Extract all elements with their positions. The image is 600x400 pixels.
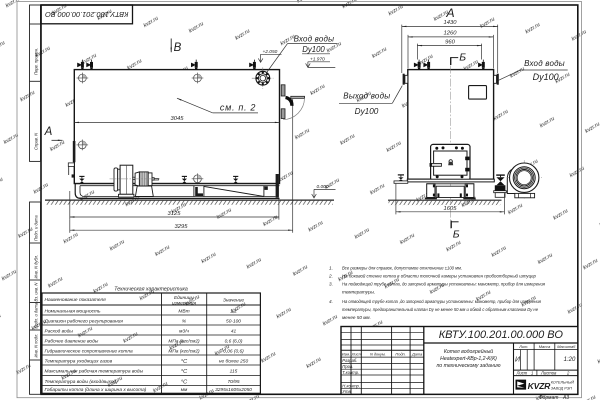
svg-text:Дата: Дата	[411, 352, 423, 357]
svg-text:Dy100: Dy100	[533, 72, 559, 82]
svg-text:Листов: Листов	[540, 371, 557, 376]
svg-text:4.: 4.	[329, 299, 333, 304]
svg-text:Лит.: Лит.	[518, 344, 528, 349]
svg-text:Номинальная мощность: Номинальная мощность	[45, 308, 102, 314]
svg-text:2.: 2.	[328, 273, 333, 278]
svg-text:3045: 3045	[171, 116, 185, 122]
svg-text:Рабочее давление воды: Рабочее давление воды	[45, 338, 99, 344]
svg-text:На боковой стенке котла в обла: На боковой стенке котла в области топочн…	[342, 272, 536, 278]
svg-text:Расход воды: Расход воды	[45, 328, 74, 334]
svg-text:0,06 (0,6): 0,06 (0,6)	[223, 348, 244, 354]
svg-text:0.000: 0.000	[317, 184, 329, 190]
svg-text:Разраб.: Разраб.	[342, 358, 357, 363]
svg-text:1260: 1260	[444, 31, 458, 37]
svg-text:МВт: МВт	[178, 308, 189, 314]
svg-text:N докум.: N докум.	[370, 352, 386, 357]
svg-text:Б: Б	[459, 52, 466, 64]
svg-text:Котел водогрейный: Котел водогрейный	[444, 348, 493, 355]
svg-text:3295х1605х2050: 3295х1605х2050	[215, 387, 252, 393]
svg-text:+2.050: +2.050	[263, 49, 278, 55]
svg-text:°С: °С	[181, 369, 188, 375]
svg-text:Габариты котла (длина х ширина: Габариты котла (длина х ширина х высота)	[45, 387, 147, 393]
svg-text:ЗАВОД РЭП: ЗАВОД РЭП	[551, 386, 572, 390]
svg-text:Инв. N подл.: Инв. N подл.	[33, 334, 38, 358]
svg-text:Т.контр.: Т.контр.	[342, 370, 359, 375]
svg-text:Пров.: Пров.	[342, 364, 353, 369]
svg-text:50-100: 50-100	[226, 318, 241, 324]
svg-text:МПа (кгс/см2): МПа (кгс/см2)	[168, 348, 200, 354]
svg-text:температуры, предохранительный: температуры, предохранительный клапан Dу…	[342, 306, 538, 312]
svg-text:Изм.: Изм.	[342, 352, 350, 357]
svg-text:1605: 1605	[444, 206, 458, 212]
svg-text:%: %	[182, 318, 187, 324]
svg-text:Гидравлическое сопротивление к: Гидравлическое сопротивление котла	[45, 348, 133, 354]
svg-text:1430: 1430	[444, 20, 458, 26]
svg-text:1:20: 1:20	[564, 357, 576, 363]
svg-text:Масса: Масса	[539, 344, 551, 349]
svg-text:Температура воды (вход/выход): Температура воды (вход/выход)	[45, 379, 119, 385]
svg-text:Б: Б	[453, 228, 460, 240]
svg-text:КВТУ.100.201.00.000 ВО: КВТУ.100.201.00.000 ВО	[45, 10, 129, 19]
svg-text:Перв. примен.: Перв. примен.	[33, 48, 38, 75]
svg-text:по техническому заданию: по техническому заданию	[436, 363, 500, 369]
svg-text:Вход воды: Вход воды	[524, 59, 565, 68]
svg-text:м3/ч: м3/ч	[179, 328, 189, 334]
svg-text:°С: °С	[181, 359, 188, 365]
svg-text:А: А	[445, 6, 454, 20]
svg-text:Подп. и дата: Подп. и дата	[33, 215, 38, 241]
svg-text:Техническая характеристика: Техническая характеристика	[114, 287, 188, 293]
svg-text:Утв.: Утв.	[342, 389, 352, 394]
svg-text:3125: 3125	[168, 211, 182, 217]
svg-text:Инв. N дубл.: Инв. N дубл.	[33, 255, 38, 279]
svg-text:KVZR: KVZR	[528, 381, 552, 391]
svg-text:41: 41	[231, 328, 237, 334]
svg-text:1: 1	[531, 371, 533, 376]
svg-text:Dy100: Dy100	[302, 45, 325, 54]
svg-text:Диапазон рабочего регулировани: Диапазон рабочего регулирования	[44, 318, 124, 324]
svg-text:МПа (кгс/см2): МПа (кгс/см2)	[168, 338, 200, 344]
svg-text:мм: мм	[181, 388, 188, 393]
svg-text:Подп. и дата: Подп. и дата	[33, 302, 38, 328]
svg-text:КВТУ.100.201.00.000 ВО: КВТУ.100.201.00.000 ВО	[439, 329, 564, 341]
svg-text:не более 250: не более 250	[219, 358, 249, 364]
svg-text:измерения: измерения	[172, 301, 196, 306]
svg-text:Выход воды: Выход воды	[343, 92, 390, 101]
svg-text:Максимальная рабочая температу: Максимальная рабочая температура воды	[45, 369, 144, 375]
svg-text:Формат: Формат	[539, 395, 559, 400]
svg-text:Значение: Значение	[223, 298, 244, 304]
svg-text:Подп.: Подп.	[395, 352, 405, 357]
svg-text:960: 960	[445, 39, 455, 45]
svg-text:Heatexpert-КВр-1,2-К(К): Heatexpert-КВр-1,2-К(К)	[440, 356, 497, 362]
svg-text:Лист: Лист	[351, 352, 363, 357]
svg-text:температуры.: температуры.	[342, 289, 375, 294]
svg-text:°С: °С	[181, 379, 188, 385]
svg-text:Н.контр.: Н.контр.	[342, 383, 360, 388]
svg-text:1,2: 1,2	[230, 308, 237, 314]
svg-text:Вз. инв. N: Вз. инв. N	[33, 283, 38, 302]
svg-text:0,6 (6,0): 0,6 (6,0)	[225, 338, 243, 344]
svg-text:Наименование показателя: Наименование показателя	[45, 297, 107, 303]
svg-text:+1.970: +1.970	[310, 57, 325, 63]
svg-text:70/95: 70/95	[227, 379, 239, 385]
svg-text:Вход воды: Вход воды	[294, 35, 335, 44]
svg-text:Лист: Лист	[516, 371, 528, 376]
svg-text:см. п. 2: см. п. 2	[220, 103, 256, 113]
svg-text:менее 50 мм.: менее 50 мм.	[342, 315, 371, 320]
svg-text:3.: 3.	[329, 281, 333, 286]
svg-text:А: А	[44, 126, 53, 138]
svg-text:Масштаб: Масштаб	[557, 344, 576, 349]
svg-text:На отводящей трубе котла ,до з: На отводящей трубе котла ,до запорной ар…	[342, 298, 541, 304]
svg-text:115: 115	[230, 369, 238, 375]
svg-text:На подводящей трубе котла, д: На подводящей трубе котла, до запорной а…	[342, 280, 545, 286]
svg-text:Единицы: Единицы	[174, 295, 195, 301]
svg-text:Dy100: Dy100	[355, 107, 379, 116]
svg-text:Все размеры для справок, допус: Все размеры для справок, допустимое откл…	[342, 266, 462, 271]
svg-text:Температура уходящих газов: Температура уходящих газов	[45, 358, 113, 364]
svg-text:1.: 1.	[329, 266, 333, 271]
svg-text:КОТЕЛЬНЫЙ: КОТЕЛЬНЫЙ	[551, 381, 575, 385]
svg-text:В: В	[174, 42, 182, 54]
svg-text:А3: А3	[562, 395, 569, 400]
svg-text:3295: 3295	[175, 224, 189, 230]
svg-text:Справ. N: Справ. N	[33, 133, 38, 150]
